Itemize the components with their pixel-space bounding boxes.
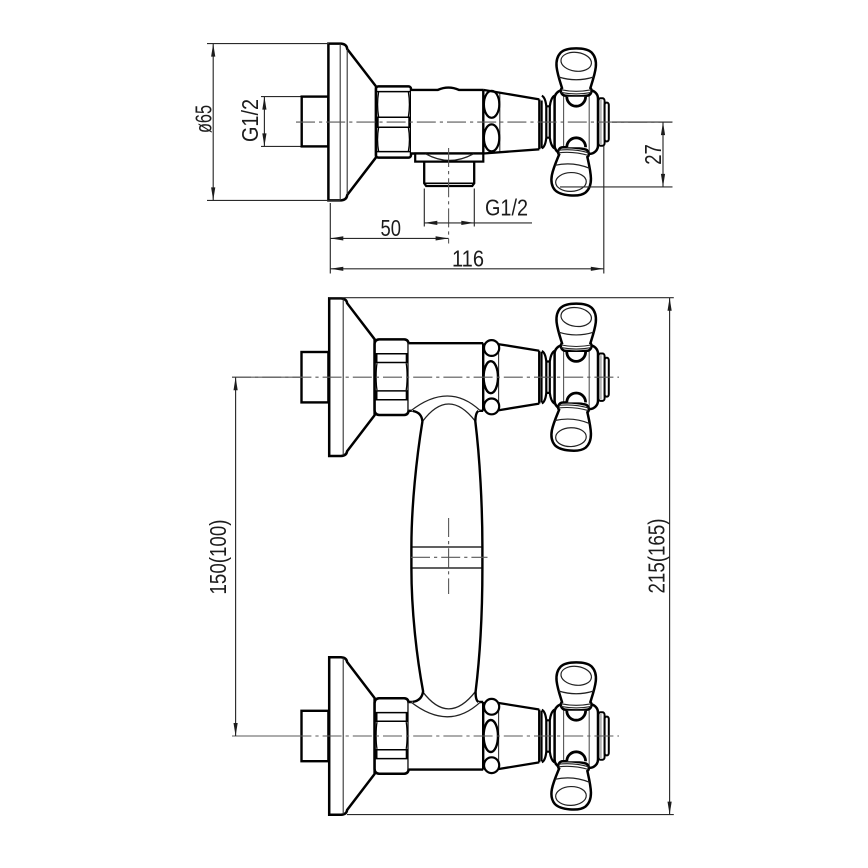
svg-text:G1/2: G1/2 <box>485 195 528 221</box>
svg-text:116: 116 <box>452 246 484 272</box>
svg-text:215(165): 215(165) <box>644 519 670 594</box>
svg-text:50: 50 <box>381 215 402 241</box>
svg-text:150(100): 150(100) <box>205 520 231 595</box>
svg-text:27: 27 <box>640 144 666 165</box>
svg-text:G1/2: G1/2 <box>237 99 263 142</box>
svg-text:ø65: ø65 <box>191 105 217 133</box>
